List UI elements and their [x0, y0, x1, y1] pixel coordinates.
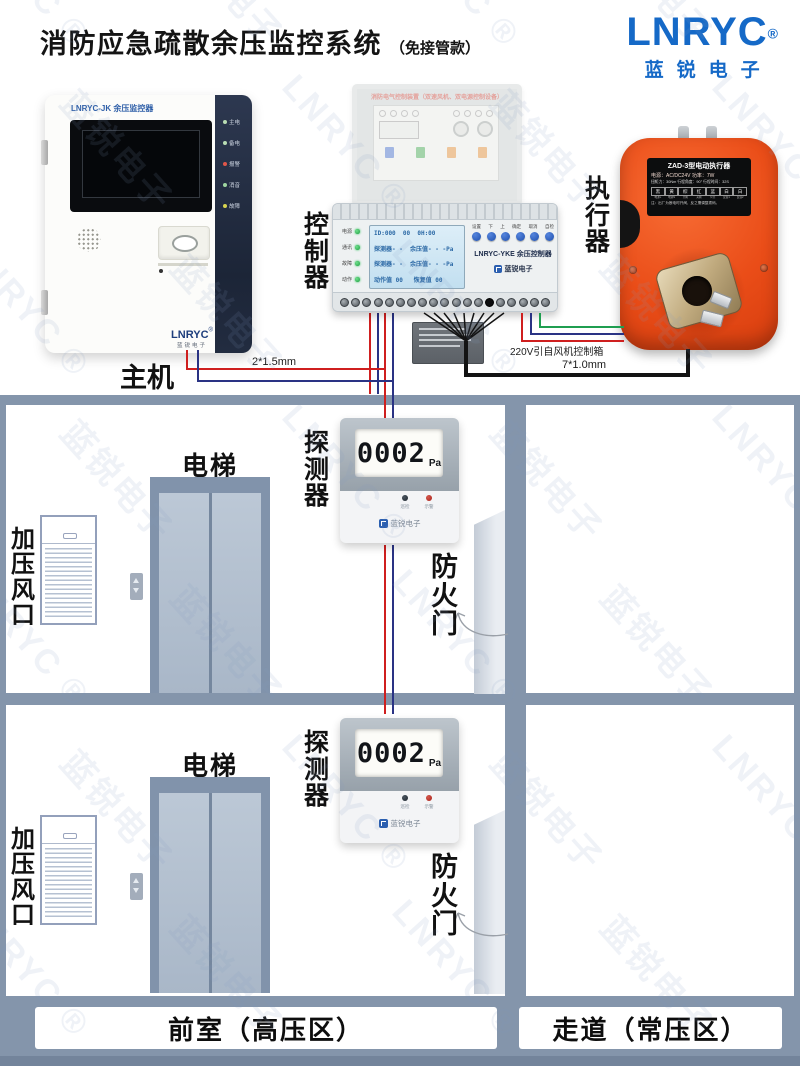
printer-slot [158, 263, 208, 266]
elevator-door-left [159, 493, 209, 693]
elevator-door-right [212, 793, 262, 993]
led-icon [223, 120, 227, 124]
sub-title: （免接管款） [390, 37, 480, 58]
main-title: 消防应急疏散余压监控系统 [40, 22, 382, 61]
controller-model-label: LNRYC-YKE 余压控制器 [471, 249, 555, 259]
detector-lcd: 0002 Pa [355, 429, 443, 477]
ghost-panel-face [373, 105, 499, 181]
elevator-door-left [159, 793, 209, 993]
lcd-line: ID:000 00 0H:00 [374, 230, 460, 237]
detector-brand: 蓝锐电子 [340, 818, 459, 829]
indicator-fault: 故障 [223, 202, 249, 210]
hinge [41, 290, 48, 315]
vent-handle [63, 833, 77, 839]
up-arrow-icon [133, 878, 139, 883]
ghost-control-panel: 消防电气控制装置（双速风机、双电源控制设备） [352, 84, 522, 206]
down-arrow-icon [133, 588, 139, 593]
pressure-value: 0002 [357, 438, 426, 469]
fire-door-label: 防火门 [430, 553, 459, 639]
vent-label: 加压风口 [10, 827, 36, 929]
detector-brand: 蓝锐电子 [340, 518, 459, 529]
device-brand-logo: LNRYC® 蓝锐电子 [163, 326, 221, 350]
push-button [530, 232, 539, 241]
brand-name-cn: 蓝锐电子 [626, 55, 791, 82]
warn-led [426, 495, 432, 501]
printer-led [159, 269, 163, 273]
zone-label-anteroom: 前室（高压区） [35, 1007, 497, 1049]
push-button [472, 232, 481, 241]
elevator [150, 477, 270, 693]
indicator-mute: 消音 [223, 181, 249, 189]
printer-door [158, 226, 210, 260]
brand-icon [494, 265, 502, 273]
pressure-value: 0002 [357, 738, 426, 769]
floor-section-2: 电梯 加压风口 探测器 0002 Pa 巡检 示警 蓝锐电子 防火门 [0, 705, 800, 997]
patrol-led-label: 巡检 [395, 804, 415, 810]
fire-door [474, 810, 505, 994]
main-host-label: 主机 [120, 356, 174, 395]
led-icon [223, 183, 227, 187]
wire-color-table: 黑黄棕红蓝白白 [651, 187, 747, 196]
detector-label: 探测器 [303, 430, 330, 510]
elevator-call-panel [130, 573, 143, 600]
registered-mark: ® [209, 328, 213, 334]
warn-led-label: 示警 [419, 804, 439, 810]
controller-buttons [471, 232, 555, 241]
actuator-label: 执行器 [584, 176, 611, 256]
push-button [516, 232, 525, 241]
detector-lcd: 0002 Pa [355, 729, 443, 777]
ghost-knob [477, 121, 493, 137]
wire-function-row: 电源L电源N开阀关阀公共反馈1反馈2 [651, 196, 747, 200]
vent-handle [63, 533, 77, 539]
indicator-backup-power: 备电 [223, 139, 249, 147]
controller-lcd: ID:000 00 0H:00 探测器- - 余压值- - -Pa 探测器- -… [369, 225, 465, 289]
main-host-indicator-strip [215, 95, 252, 353]
vent-louvers [45, 545, 92, 620]
wall-horizontal-top [0, 395, 800, 405]
vent-label: 加压风口 [10, 527, 36, 629]
ghost-panel-title: 消防电气控制装置（双速风机、双电源控制设备） [357, 92, 517, 101]
screw [760, 264, 768, 272]
floor-section-1: 电梯 加压风口 探测器 0002 Pa 巡检 示警 蓝锐电子 防火门 [0, 405, 800, 697]
led-icon [355, 277, 360, 282]
spec-plate [412, 322, 484, 364]
elevator-door-right [212, 493, 262, 693]
page-title: 消防应急疏散余压监控系统 （免接管款） [40, 22, 480, 61]
controller-label: 控制器 [303, 212, 330, 292]
led-icon [223, 141, 227, 145]
indicator-alarm: 报警 [223, 160, 249, 168]
controller-led-fault: 故障 [342, 260, 360, 267]
brand-logo-block: LNRYC® 蓝锐电子 [626, 12, 778, 82]
lcd-line: 动作值 00 恢复值 00 [374, 275, 460, 284]
patrol-led [402, 495, 408, 501]
actuator-side-cap [620, 200, 640, 248]
registered-mark: ® [768, 26, 778, 42]
up-arrow-icon [133, 578, 139, 583]
hinge [41, 140, 48, 165]
led-icon [223, 204, 227, 208]
patrol-led [402, 795, 408, 801]
pressure-unit: Pa [429, 458, 441, 469]
led-icon [355, 245, 360, 250]
actuator-body: ZAD-3型电动执行器 电源：AC/DC24V 功率：7W 扭矩力：30Nm 行… [620, 138, 778, 350]
poster-page: 消防应急疏散余压监控系统 （免接管款） LNRYC® 蓝锐电子 [0, 0, 800, 1066]
printer-handle [172, 235, 198, 252]
actuator-torque-spec: 扭矩力：30Nm 行程角度：90° 行程时间：32S [651, 180, 747, 185]
lcd-line: 探测器- - 余压值- - -Pa [374, 244, 460, 253]
din-rail-clips [333, 204, 557, 220]
led-icon [223, 162, 227, 166]
wire-220v-label: 220V引自风机控制箱 [510, 343, 603, 358]
pressure-detector: 0002 Pa 巡检 示警 蓝锐电子 [340, 418, 459, 543]
screw [629, 266, 637, 274]
brand-logo: LNRYC® [626, 12, 778, 52]
controller-led-action: 动作 [342, 276, 360, 283]
pressure-detector: 0002 Pa 巡检 示警 蓝锐电子 [340, 718, 459, 843]
elevator [150, 777, 270, 993]
brand-icon [379, 519, 388, 528]
pressurized-air-vent [40, 815, 97, 925]
screen-inner [82, 130, 200, 198]
fire-door [474, 510, 505, 694]
fire-door-label: 防火门 [430, 853, 459, 939]
pressurized-air-vent [40, 515, 97, 625]
wire-gauge-left-label: 2*1.5mm [252, 356, 296, 368]
indicator-main-power: 主电 [223, 118, 249, 126]
main-host-device: LNRYC-JK 余压监控器 LNRYC® 蓝锐电子 主电 备电 报警 消音 故… [45, 95, 252, 353]
patrol-led-label: 巡检 [395, 504, 415, 510]
actuator-spec-label: ZAD-3型电动执行器 电源：AC/DC24V 功率：7W 扭矩力：30Nm 行… [647, 158, 751, 216]
lcd-line: 探测器- - 余压值- - -Pa [374, 259, 460, 268]
ghost-lcd [379, 121, 419, 139]
terminal-row [333, 292, 557, 311]
pressure-unit: Pa [429, 758, 441, 769]
led-icon [355, 229, 360, 234]
main-host-screen [70, 120, 212, 212]
controller-button-labels: 设置下上确定取消自检 [471, 224, 555, 230]
elevator-call-panel [130, 873, 143, 900]
controller-led-power: 电源 [342, 228, 360, 235]
controller-led-comm: 通讯 [342, 244, 360, 251]
speaker-grille [77, 228, 101, 252]
wall-bottom-edge [0, 1056, 800, 1066]
push-button [487, 232, 496, 241]
warn-led [426, 795, 432, 801]
actuator-clamp-mechanism [653, 246, 745, 342]
warn-led-label: 示警 [419, 504, 439, 510]
down-arrow-icon [133, 888, 139, 893]
detector-label: 探测器 [303, 730, 330, 810]
wire-gauge-right-label: 7*1.0mm [562, 359, 606, 371]
push-button [501, 232, 510, 241]
zone-label-corridor: 走道（常压区） [519, 1007, 782, 1049]
actuator-device: ZAD-3型电动执行器 电源：AC/DC24V 功率：7W 扭矩力：30Nm 行… [620, 126, 778, 350]
actuator-model: ZAD-3型电动执行器 [651, 161, 747, 171]
main-host-model-label: LNRYC-JK 余压监控器 [71, 103, 153, 114]
vent-louvers [45, 845, 92, 920]
actuator-power-spec: 电源：AC/DC24V 功率：7W [651, 172, 747, 179]
actuator-note: 注：出厂为断电时开阀，反之需调整拨码。 [651, 201, 747, 206]
push-button [545, 232, 554, 241]
brand-icon [379, 819, 388, 828]
shaft-hole [682, 276, 712, 306]
controller-brand: 蓝锐电子 [471, 264, 555, 274]
ghost-knob [453, 121, 469, 137]
led-icon [355, 261, 360, 266]
controller-device: 电源 通讯 故障 动作 ID:000 00 0H:00 探测器- - 余压值- … [332, 203, 558, 312]
